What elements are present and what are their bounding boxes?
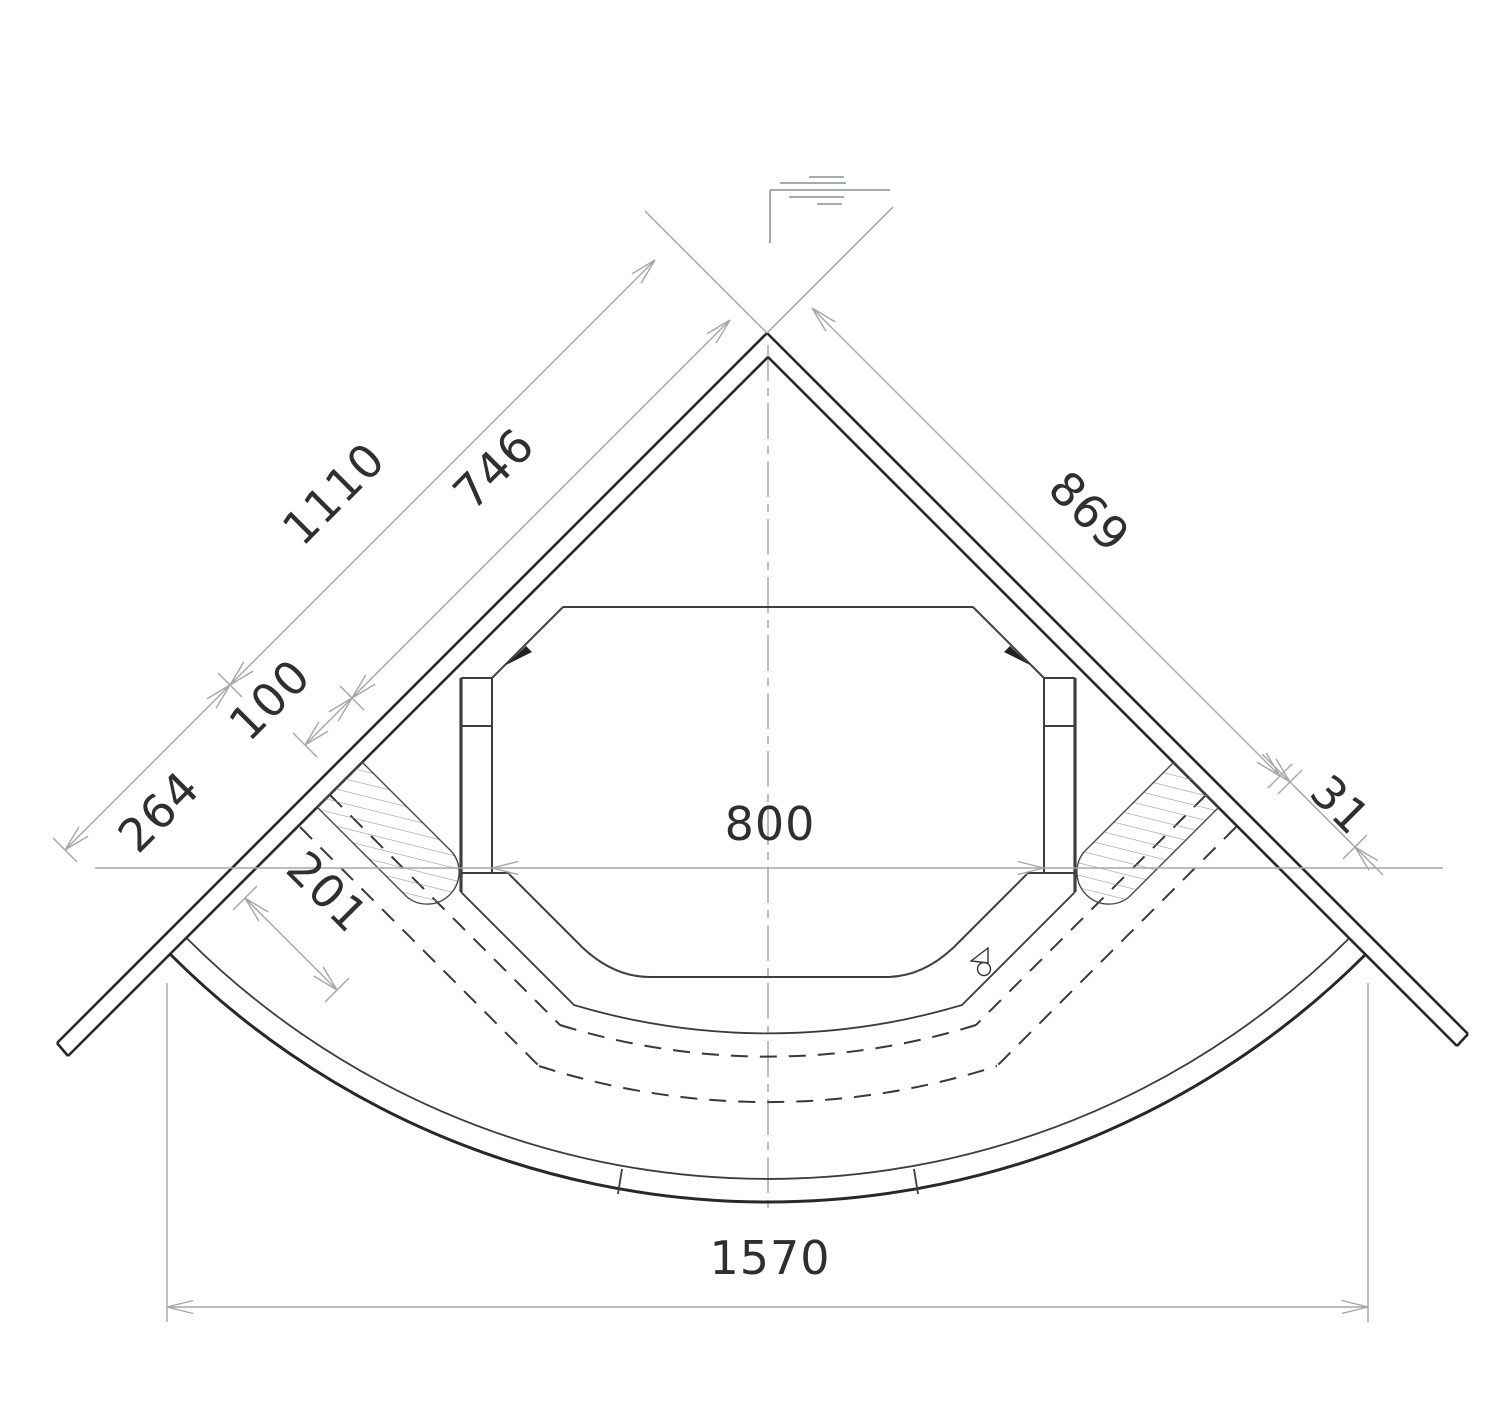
dim-label-1570: 1570	[709, 1231, 830, 1285]
corner-bathtub-technical-drawing: 1110 746 869 100 264 201 31 800 1570	[0, 0, 1500, 1427]
dim-label-869: 869	[1038, 460, 1140, 562]
dim-label-264: 264	[107, 760, 209, 862]
dim-label-31: 31	[1300, 764, 1381, 845]
dim-label-746: 746	[442, 417, 544, 519]
dim-label-201: 201	[276, 840, 378, 942]
dimension-labels: 1110 746 869 100 264 201 31 800 1570	[107, 417, 1380, 1285]
plan-view-canvas: 1110 746 869 100 264 201 31 800 1570	[0, 0, 1500, 1427]
drain-symbol	[971, 948, 991, 976]
dim-label-800: 800	[725, 797, 816, 851]
section-flag-icon	[770, 177, 890, 243]
dimension-lines	[65, 207, 1443, 1322]
dim-label-100: 100	[218, 648, 320, 750]
